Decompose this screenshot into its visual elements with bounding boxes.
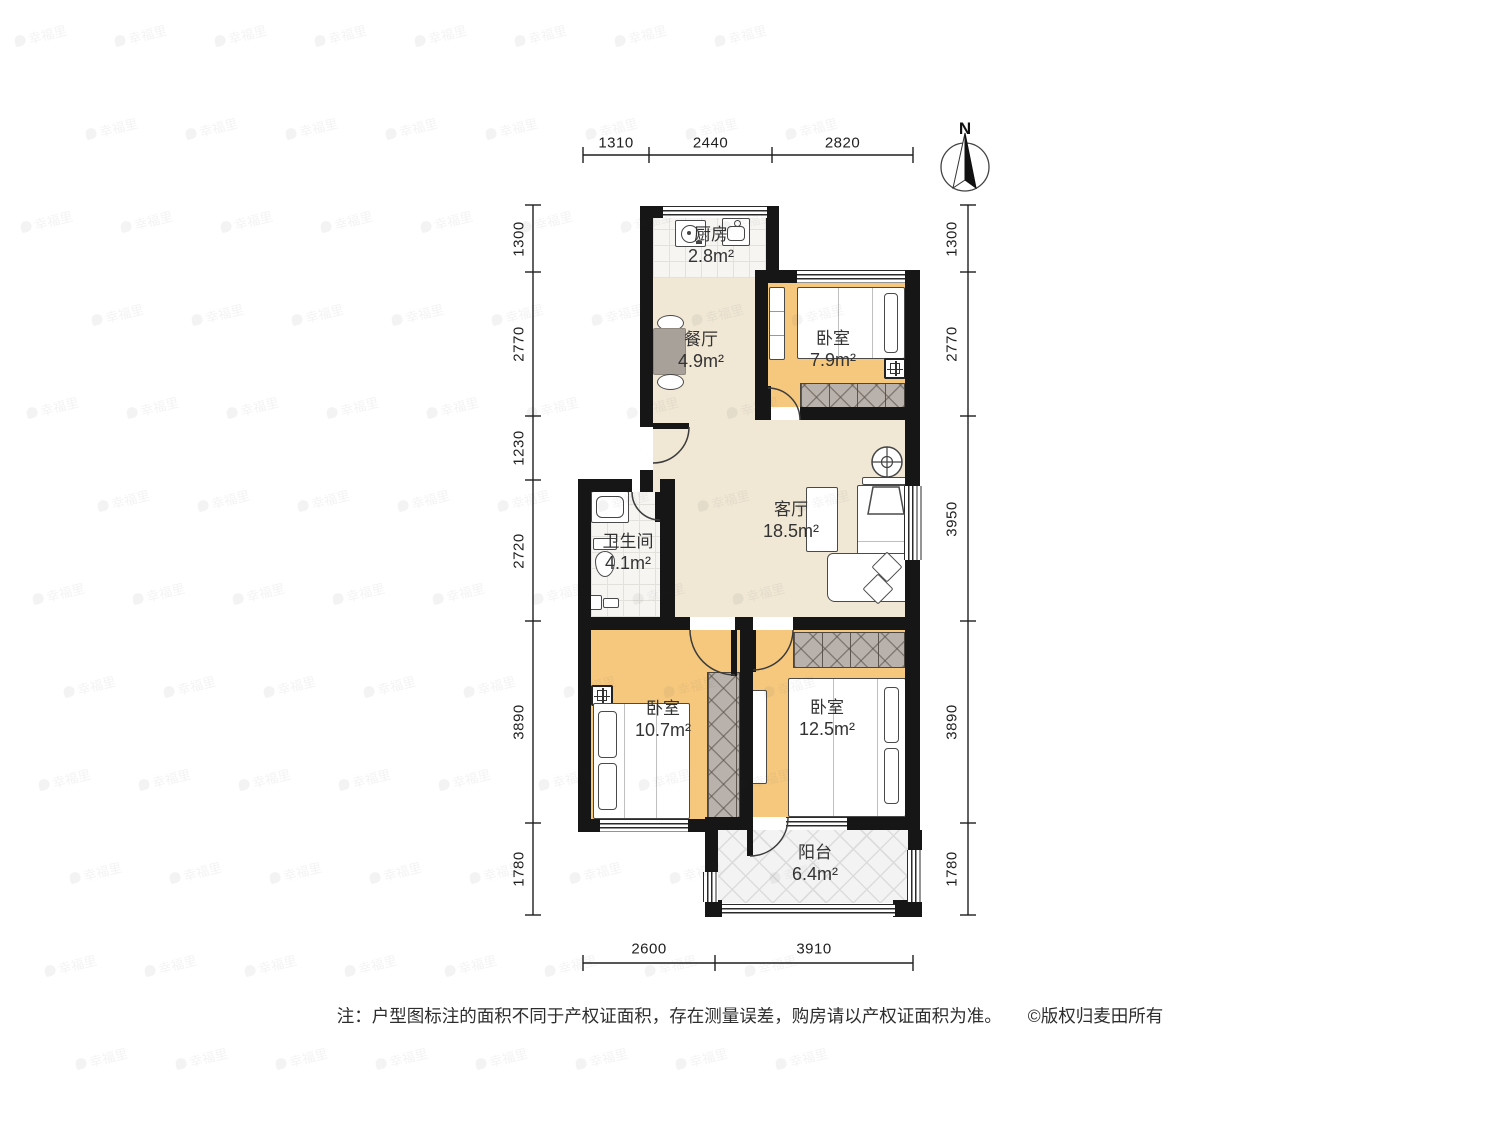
watermark: 幸福里	[495, 485, 551, 516]
watermark-text: 幸福里	[87, 1043, 129, 1071]
watermark-logo-icon	[374, 1057, 387, 1070]
window-bedroom-right-balcony	[786, 817, 847, 829]
dim-label-left-1: 2770	[511, 326, 528, 361]
watermark-text: 幸福里	[226, 20, 268, 48]
watermark-text: 幸福里	[32, 206, 74, 234]
watermark-logo-icon	[696, 499, 709, 512]
watermark-text: 幸福里	[244, 578, 286, 606]
watermark-logo-icon	[637, 778, 650, 791]
watermark-logo-icon	[368, 871, 381, 884]
watermark: 幸福里	[389, 299, 445, 330]
wardrobe-bedroom-top	[800, 383, 905, 408]
watermark-text: 幸福里	[250, 764, 292, 792]
watermark: 幸福里	[373, 1043, 429, 1074]
watermark-text: 幸福里	[409, 485, 451, 513]
watermark-text: 幸福里	[309, 485, 351, 513]
wall-segment	[908, 830, 922, 850]
watermark-logo-icon	[562, 685, 575, 698]
watermark-text: 幸福里	[156, 950, 198, 978]
disclaimer-note: 注：户型图标注的面积不同于产权证面积，存在测量误差，购房请以产权证面积为准。	[337, 1003, 1002, 1028]
watermark: 幸福里	[218, 206, 274, 237]
watermark-text: 幸福里	[256, 950, 298, 978]
watermark: 幸福里	[361, 671, 417, 702]
watermark-text: 幸福里	[281, 857, 323, 885]
watermark-logo-icon	[319, 220, 332, 233]
compass-needle-west	[953, 133, 965, 188]
watermark-logo-icon	[531, 592, 544, 605]
watermark: 幸福里	[195, 485, 251, 516]
wall-segment	[731, 630, 737, 676]
room-area: 18.5m²	[763, 520, 819, 542]
dim-label-top-2: 2820	[825, 135, 860, 152]
watermark-logo-icon	[496, 499, 509, 512]
watermark-logo-icon	[643, 964, 656, 977]
watermark-logo-icon	[25, 406, 38, 419]
watermark-logo-icon	[13, 34, 26, 47]
watermark-logo-icon	[431, 592, 444, 605]
bath-fixture	[603, 598, 619, 608]
watermark: 幸福里	[161, 671, 217, 702]
watermark: 幸福里	[61, 671, 117, 702]
watermark-logo-icon	[396, 499, 409, 512]
watermark-logo-icon	[668, 871, 681, 884]
watermark: 幸福里	[267, 857, 323, 888]
watermark: 幸福里	[612, 20, 668, 51]
watermark-logo-icon	[737, 778, 750, 791]
wall-segment	[578, 479, 591, 632]
dim-label-right-0: 1300	[944, 221, 961, 256]
watermark: 幸福里	[430, 578, 486, 609]
watermark-text: 幸福里	[432, 206, 474, 234]
watermark-text: 幸福里	[538, 392, 580, 420]
watermark: 幸福里	[567, 857, 623, 888]
watermark-text: 幸福里	[326, 20, 368, 48]
watermark-logo-icon	[190, 313, 203, 326]
watermark: 幸福里	[395, 485, 451, 516]
watermark-logo-icon	[568, 871, 581, 884]
watermark: 幸福里	[136, 764, 192, 795]
watermark-logo-icon	[337, 778, 350, 791]
watermark-logo-icon	[68, 871, 81, 884]
watermark-text: 幸福里	[375, 671, 417, 699]
dim-label-left-5: 1780	[511, 851, 528, 886]
watermark-logo-icon	[331, 592, 344, 605]
watermark-logo-icon	[162, 685, 175, 698]
pillow	[884, 748, 899, 804]
watermark-text: 幸福里	[556, 950, 598, 978]
watermark: 幸福里	[118, 206, 174, 237]
watermark-text: 幸福里	[44, 578, 86, 606]
watermark-logo-icon	[590, 313, 603, 326]
watermark-logo-icon	[168, 871, 181, 884]
watermark-logo-icon	[474, 1057, 487, 1070]
watermark-text: 幸福里	[187, 1043, 229, 1071]
watermark: 幸福里	[324, 392, 380, 423]
pillow	[884, 687, 899, 743]
watermark-logo-icon	[619, 220, 632, 233]
wall-segment	[747, 818, 753, 856]
watermark: 幸福里	[312, 20, 368, 51]
watermark-logo-icon	[313, 34, 326, 47]
watermark-text: 幸福里	[209, 485, 251, 513]
watermark: 幸福里	[89, 299, 145, 330]
watermark-logo-icon	[113, 34, 126, 47]
watermark-text: 幸福里	[138, 392, 180, 420]
watermark-logo-icon	[790, 313, 803, 326]
watermark: 幸福里	[67, 857, 123, 888]
window-bedroom-left	[600, 819, 688, 832]
watermark-logo-icon	[543, 964, 556, 977]
watermark-logo-icon	[119, 220, 132, 233]
window-living	[904, 486, 922, 560]
watermark-logo-icon	[484, 127, 497, 140]
watermark-logo-icon	[225, 406, 238, 419]
watermark: 幸福里	[36, 764, 92, 795]
watermark-logo-icon	[731, 592, 744, 605]
watermark-text: 幸福里	[526, 20, 568, 48]
pillow	[884, 293, 898, 353]
watermark-text: 幸福里	[126, 20, 168, 48]
watermark-text: 幸福里	[756, 950, 798, 978]
watermark-logo-icon	[37, 778, 50, 791]
room-label-balcony: 阳台 6.4m²	[792, 843, 838, 885]
watermark: 幸福里	[673, 1043, 729, 1074]
watermark: 幸福里	[483, 113, 539, 144]
dim-label-left-2: 1230	[511, 430, 528, 465]
watermark-text: 幸福里	[450, 764, 492, 792]
watermark-logo-icon	[662, 685, 675, 698]
room-name: 餐厅	[678, 330, 724, 350]
watermark: 幸福里	[442, 950, 498, 981]
watermark: 幸福里	[73, 1043, 129, 1074]
watermark: 幸福里	[342, 950, 398, 981]
room-area: 4.9m²	[678, 350, 724, 372]
watermark-logo-icon	[231, 592, 244, 605]
watermark-text: 幸福里	[581, 857, 623, 885]
watermark-text: 幸福里	[75, 671, 117, 699]
watermark-text: 幸福里	[197, 113, 239, 141]
dim-label-bottom-1: 3910	[796, 941, 831, 958]
watermark: 幸福里	[95, 485, 151, 516]
watermark-text: 幸福里	[397, 113, 439, 141]
room-name: 卫生间	[603, 532, 654, 552]
copyright-text: ©版权归麦田所有	[1028, 1003, 1163, 1028]
watermark-text: 幸福里	[350, 764, 392, 792]
watermark: 幸福里	[289, 299, 345, 330]
watermark-logo-icon	[325, 406, 338, 419]
watermark: 幸福里	[412, 20, 468, 51]
watermark: 幸福里	[142, 950, 198, 981]
watermark-logo-icon	[574, 1057, 587, 1070]
room-name: 客厅	[763, 500, 819, 520]
watermark: 幸福里	[573, 1043, 629, 1074]
compass-north-label: N	[959, 119, 971, 139]
watermark-logo-icon	[219, 220, 232, 233]
watermark-logo-icon	[674, 1057, 687, 1070]
room-name: 卧室	[635, 699, 691, 719]
watermark-text: 幸福里	[487, 1043, 529, 1071]
watermark: 幸福里	[436, 764, 492, 795]
watermark-logo-icon	[584, 127, 597, 140]
wall-segment	[578, 617, 591, 832]
watermark-logo-icon	[525, 406, 538, 419]
room-name: 厨房	[688, 225, 734, 245]
watermark-text: 幸福里	[338, 392, 380, 420]
wall-segment	[800, 407, 907, 420]
watermark-logo-icon	[43, 964, 56, 977]
watermark: 幸福里	[273, 1043, 329, 1074]
watermark-logo-icon	[243, 964, 256, 977]
watermark: 幸福里	[167, 857, 223, 888]
window-bedroom-top	[797, 270, 905, 283]
window-balcony-right	[907, 850, 922, 902]
watermark-logo-icon	[213, 34, 226, 47]
watermark-text: 幸福里	[287, 1043, 329, 1071]
watermark: 幸福里	[295, 485, 351, 516]
watermark: 幸福里	[130, 578, 186, 609]
watermark-logo-icon	[84, 127, 97, 140]
watermark-logo-icon	[268, 871, 281, 884]
room-name: 卧室	[810, 329, 856, 349]
watermark-text: 幸福里	[238, 392, 280, 420]
watermark: 幸福里	[742, 950, 798, 981]
watermark-logo-icon	[174, 1057, 187, 1070]
watermark-logo-icon	[125, 406, 138, 419]
watermark: 幸福里	[712, 20, 768, 51]
watermark: 幸福里	[773, 1043, 829, 1074]
watermark-text: 幸福里	[38, 392, 80, 420]
compass-needle-east	[965, 133, 976, 188]
compass-circle	[941, 143, 989, 191]
watermark-text: 幸福里	[626, 20, 668, 48]
watermark-text: 幸福里	[332, 206, 374, 234]
watermark-logo-icon	[596, 499, 609, 512]
watermark-text: 幸福里	[687, 1043, 729, 1071]
pillow	[598, 711, 617, 758]
watermark-logo-icon	[490, 313, 503, 326]
dim-label-right-4: 1780	[944, 851, 961, 886]
watermark-text: 幸福里	[532, 206, 574, 234]
watermark-text: 幸福里	[381, 857, 423, 885]
watermark-text: 幸福里	[344, 578, 386, 606]
watermark-text: 幸福里	[175, 671, 217, 699]
watermark: 幸福里	[512, 20, 568, 51]
watermark: 幸福里	[189, 299, 245, 330]
wall-segment	[847, 817, 907, 830]
watermark-text: 幸福里	[150, 764, 192, 792]
pillow	[598, 763, 617, 810]
watermark: 幸福里	[473, 1043, 529, 1074]
wardrobe-bedroom-right	[793, 632, 905, 668]
watermark-logo-icon	[137, 778, 150, 791]
watermark: 幸福里	[542, 950, 598, 981]
room-label-kitchen: 厨房 2.8m²	[688, 225, 734, 267]
watermark-logo-icon	[762, 685, 775, 698]
room-label-bedroom-top: 卧室 7.9m²	[810, 329, 856, 371]
footer-disclaimer: 注：户型图标注的面积不同于产权证面积，存在测量误差，购房请以产权证面积为准。 ©…	[0, 1003, 1500, 1028]
watermark: 幸福里	[261, 671, 317, 702]
watermark-logo-icon	[713, 34, 726, 47]
watermark-logo-icon	[284, 127, 297, 140]
watermark-logo-icon	[274, 1057, 287, 1070]
watermark-text: 幸福里	[475, 671, 517, 699]
dim-label-top-1: 2440	[693, 135, 728, 152]
wall-segment	[705, 900, 722, 917]
watermark-logo-icon	[184, 127, 197, 140]
watermark-logo-icon	[390, 313, 403, 326]
watermark-text: 幸福里	[438, 392, 480, 420]
watermark: 幸福里	[12, 20, 68, 51]
dim-label-right-3: 3890	[944, 704, 961, 739]
watermark: 幸福里	[236, 764, 292, 795]
watermark-logo-icon	[413, 34, 426, 47]
watermark: 幸福里	[589, 299, 645, 330]
watermark-text: 幸福里	[181, 857, 223, 885]
watermark: 幸福里	[367, 857, 423, 888]
watermark-text: 幸福里	[787, 1043, 829, 1071]
watermark: 幸福里	[83, 113, 139, 144]
watermark-logo-icon	[425, 406, 438, 419]
watermark-logo-icon	[625, 406, 638, 419]
room-label-bedroom-left: 卧室 10.7m²	[635, 699, 691, 741]
watermark-text: 幸福里	[456, 950, 498, 978]
watermark-logo-icon	[743, 964, 756, 977]
watermark: 幸福里	[424, 392, 480, 423]
watermark-logo-icon	[290, 313, 303, 326]
watermark-logo-icon	[774, 1057, 787, 1070]
wall-segment	[660, 479, 675, 630]
ac-unit-icon	[884, 358, 906, 379]
watermark-text: 幸福里	[356, 950, 398, 978]
room-label-bathroom: 卫生间 4.1m²	[603, 532, 654, 574]
watermark-logo-icon	[462, 685, 475, 698]
wall-segment	[655, 492, 661, 522]
watermark-logo-icon	[725, 406, 738, 419]
wall-segment	[893, 900, 922, 917]
watermark-logo-icon	[362, 685, 375, 698]
dim-label-top-0: 1310	[598, 135, 633, 152]
watermark: 幸福里	[336, 764, 392, 795]
watermark-logo-icon	[419, 220, 432, 233]
watermark-logo-icon	[296, 499, 309, 512]
watermark-logo-icon	[537, 778, 550, 791]
watermark: 幸福里	[224, 392, 280, 423]
watermark-text: 幸福里	[97, 113, 139, 141]
watermark: 幸福里	[242, 950, 298, 981]
watermark-text: 幸福里	[297, 113, 339, 141]
window-balcony-bottom	[722, 904, 895, 916]
watermark-text: 幸福里	[109, 485, 151, 513]
room-name: 阳台	[792, 843, 838, 863]
watermark: 幸福里	[383, 113, 439, 144]
watermark-logo-icon	[19, 220, 32, 233]
watermark-text: 幸福里	[50, 764, 92, 792]
watermark-logo-icon	[343, 964, 356, 977]
watermark: 幸福里	[112, 20, 168, 51]
watermark-text: 幸福里	[232, 206, 274, 234]
watermark-text: 幸福里	[726, 20, 768, 48]
watermark-logo-icon	[437, 778, 450, 791]
watermark: 幸福里	[230, 578, 286, 609]
dim-label-left-4: 3890	[511, 704, 528, 739]
watermark-text: 幸福里	[56, 950, 98, 978]
watermark: 幸福里	[461, 671, 517, 702]
room-area: 7.9m²	[810, 349, 856, 371]
watermark-logo-icon	[31, 592, 44, 605]
watermark: 幸福里	[18, 206, 74, 237]
watermark-logo-icon	[262, 685, 275, 698]
watermark-logo-icon	[468, 871, 481, 884]
room-label-dining: 餐厅 4.9m²	[678, 330, 724, 372]
floorplan-canvas: 幸福里幸福里幸福里幸福里幸福里幸福里幸福里幸福里幸福里幸福里幸福里幸福里幸福里幸…	[0, 0, 1500, 1125]
wardrobe-bedroom-left	[707, 672, 740, 819]
watermark-text: 幸福里	[426, 20, 468, 48]
dim-label-bottom-0: 2600	[631, 941, 666, 958]
dining-chair	[657, 374, 684, 390]
watermark-logo-icon	[74, 1057, 87, 1070]
watermark-logo-icon	[690, 313, 703, 326]
watermark-text: 幸福里	[103, 299, 145, 327]
watermark-text: 幸福里	[203, 299, 245, 327]
watermark-text: 幸福里	[132, 206, 174, 234]
room-area: 4.1m²	[603, 552, 654, 574]
watermark: 幸福里	[524, 392, 580, 423]
watermark-logo-icon	[631, 592, 644, 605]
dim-label-left-3: 2720	[511, 533, 528, 568]
sofa-side-table	[862, 477, 907, 485]
watermark-logo-icon	[768, 871, 781, 884]
watermark: 幸福里	[212, 20, 268, 51]
watermark: 幸福里	[283, 113, 339, 144]
watermark: 幸福里	[183, 113, 239, 144]
watermark-text: 幸福里	[26, 20, 68, 48]
dim-label-right-1: 2770	[944, 326, 961, 361]
watermark-logo-icon	[513, 34, 526, 47]
dim-label-right-2: 3950	[944, 501, 961, 536]
watermark-logo-icon	[143, 964, 156, 977]
watermark-logo-icon	[62, 685, 75, 698]
watermark-text: 幸福里	[503, 299, 545, 327]
wall-segment	[578, 617, 690, 630]
room-label-living: 客厅 18.5m²	[763, 500, 819, 542]
watermark-text: 幸福里	[303, 299, 345, 327]
watermark-text: 幸福里	[403, 299, 445, 327]
watermark-logo-icon	[96, 499, 109, 512]
room-area: 2.8m²	[688, 245, 734, 267]
wall-segment	[750, 630, 756, 672]
watermark-text: 幸福里	[275, 671, 317, 699]
watermark: 幸福里	[124, 392, 180, 423]
dim-label-left-0: 1300	[511, 221, 528, 256]
watermark-logo-icon	[196, 499, 209, 512]
watermark-logo-icon	[613, 34, 626, 47]
watermark: 幸福里	[42, 950, 98, 981]
watermark-logo-icon	[384, 127, 397, 140]
watermark: 幸福里	[30, 578, 86, 609]
room-area: 6.4m²	[792, 863, 838, 885]
watermark: 幸福里	[418, 206, 474, 237]
watermark-text: 幸福里	[144, 578, 186, 606]
watermark-text: 幸福里	[587, 1043, 629, 1071]
watermark-logo-icon	[784, 127, 797, 140]
watermark-logo-icon	[443, 964, 456, 977]
watermark-text: 幸福里	[497, 113, 539, 141]
room-area: 10.7m²	[635, 719, 691, 741]
wall-segment	[653, 423, 689, 429]
bedroom-top-cabinet	[769, 287, 785, 360]
watermark-logo-icon	[131, 592, 144, 605]
watermark: 幸福里	[318, 206, 374, 237]
